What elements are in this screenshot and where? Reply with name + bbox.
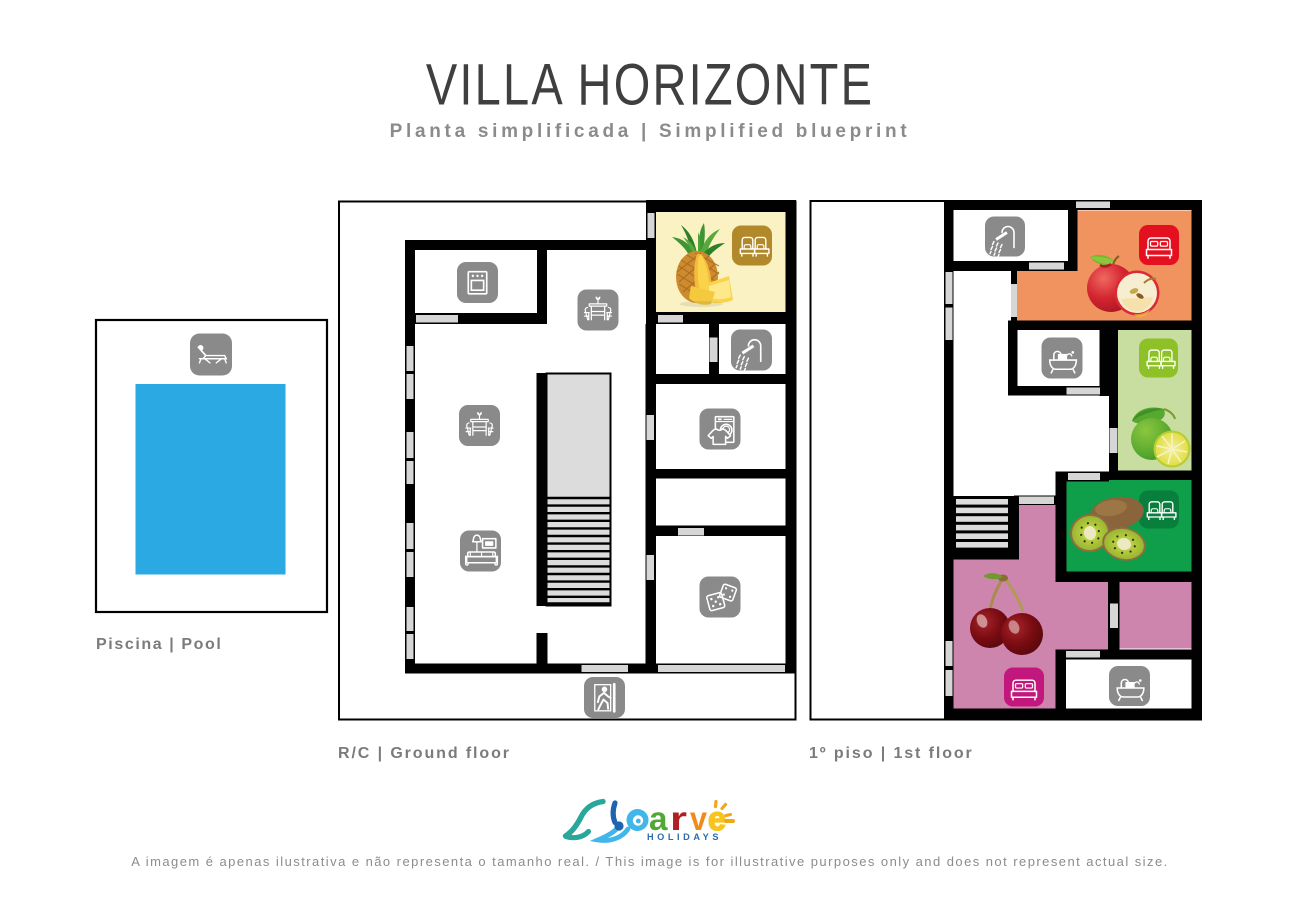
svg-text:HOLIDAYS: HOLIDAYS xyxy=(647,832,722,842)
